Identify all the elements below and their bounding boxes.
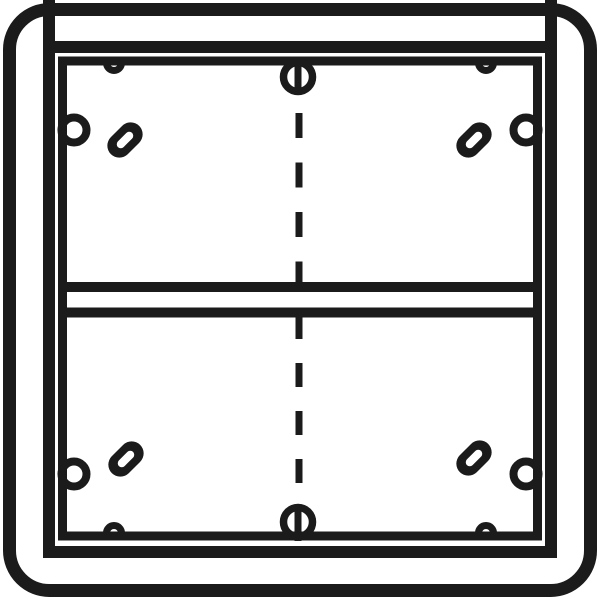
- wall-notch-right-bottom: [514, 462, 539, 487]
- wall-notch-right-top: [514, 118, 539, 143]
- outer-frame: [10, 10, 591, 591]
- wall-notch-left-top: [62, 118, 87, 143]
- surface-mount-frame-diagram: [0, 0, 600, 600]
- wall-notch-left-bottom: [62, 462, 87, 487]
- technical-drawing-page: [0, 0, 600, 600]
